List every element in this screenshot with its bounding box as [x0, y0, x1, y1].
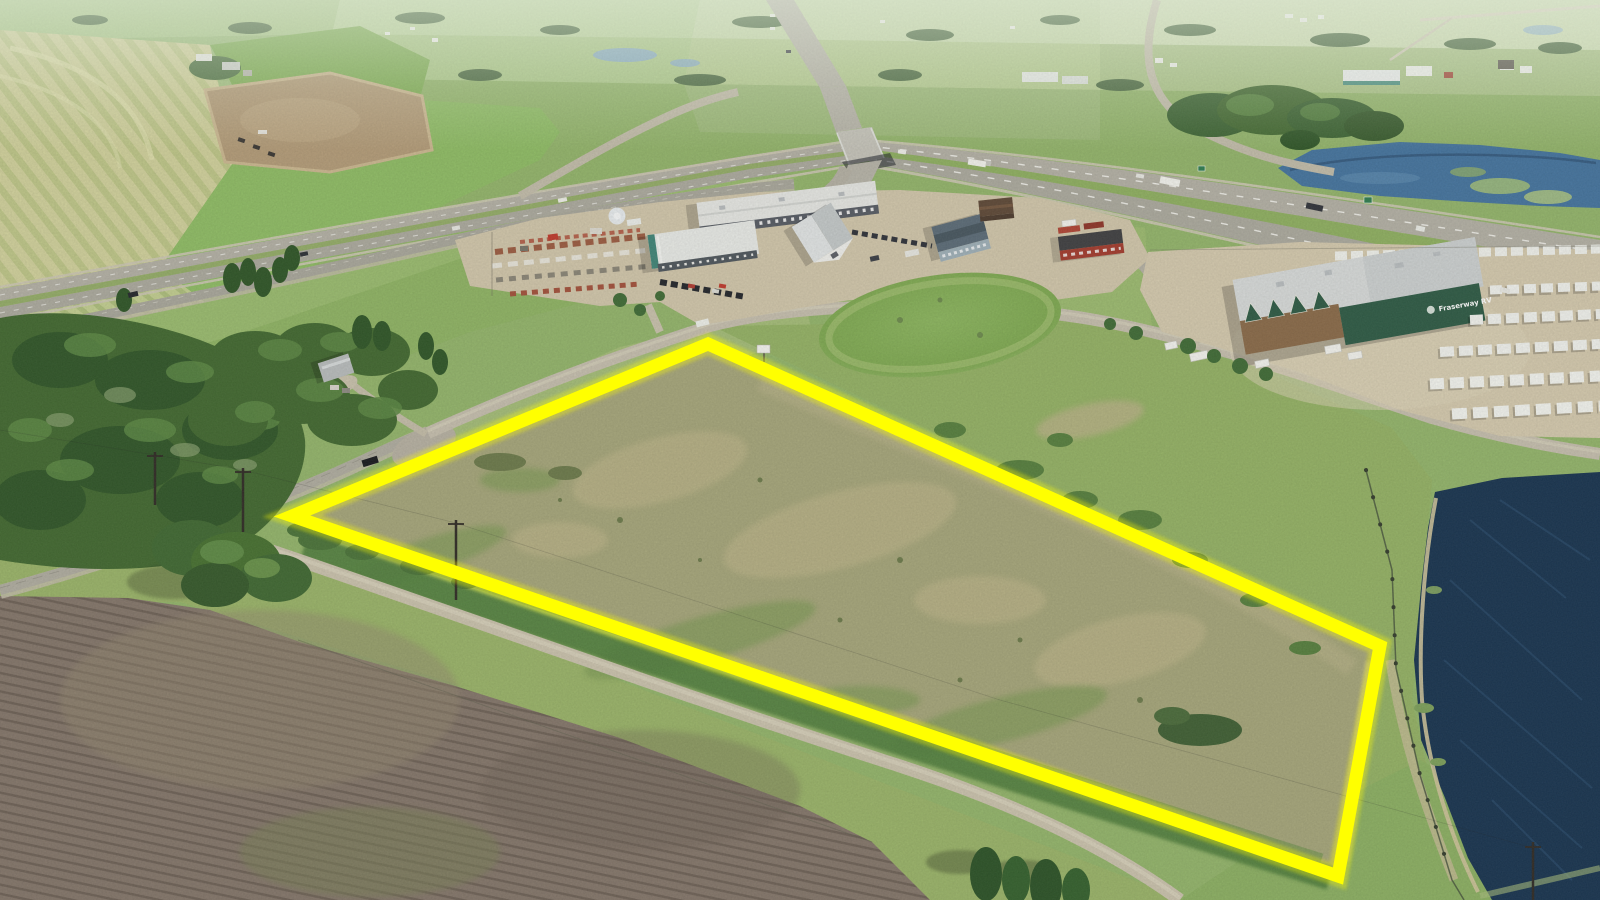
atmospheric-haze: [0, 0, 1600, 150]
aerial-photo: Fraserway RV: [0, 0, 1600, 900]
aerial-photo-canvas: Fraserway RV: [0, 0, 1600, 900]
